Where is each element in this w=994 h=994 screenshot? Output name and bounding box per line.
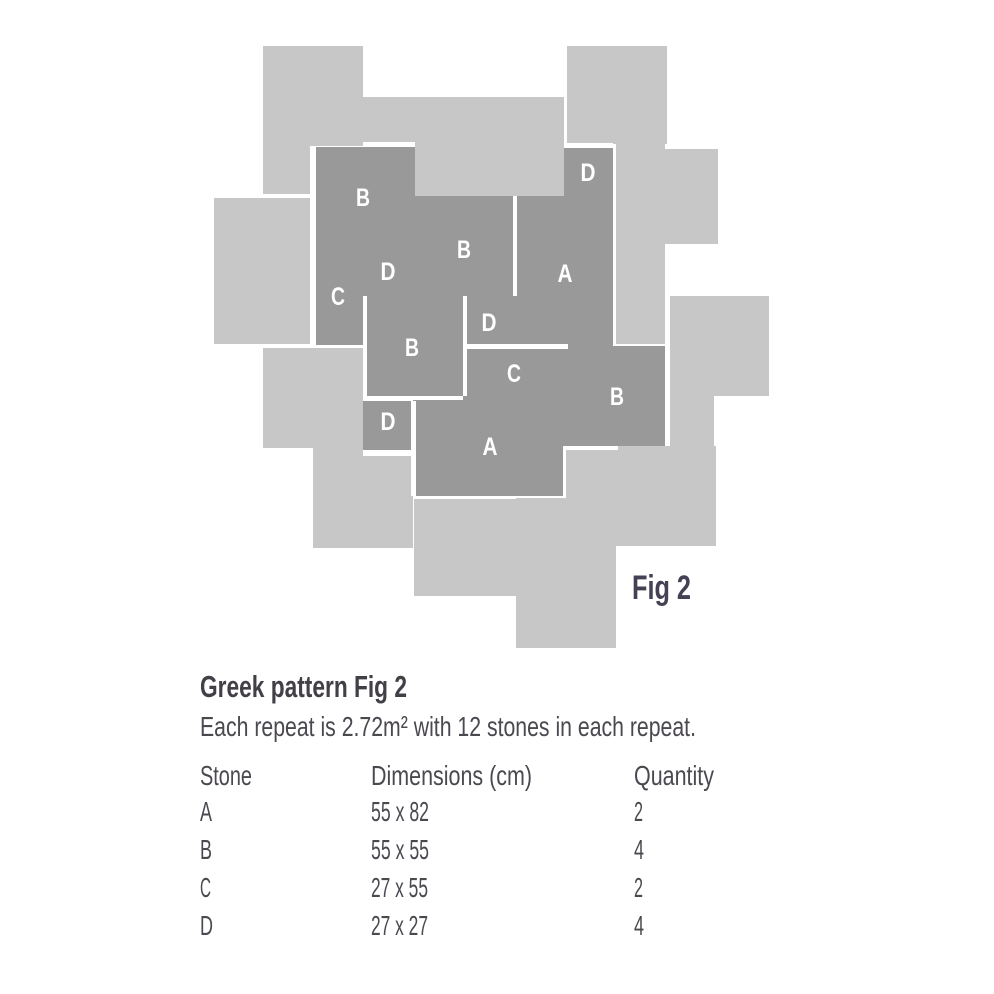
svg-text:B: B	[356, 184, 370, 212]
svg-text:D: D	[200, 910, 213, 941]
svg-text:55 x 82: 55 x 82	[371, 796, 429, 827]
svg-text:2: 2	[634, 872, 643, 903]
svg-text:27 x 55: 27 x 55	[371, 872, 428, 903]
svg-text:Fig 2: Fig 2	[632, 569, 691, 607]
svg-text:4: 4	[634, 910, 644, 941]
svg-text:A: A	[483, 433, 498, 461]
svg-text:27 x 27: 27 x 27	[371, 910, 428, 941]
svg-text:A: A	[558, 260, 573, 288]
svg-text:B: B	[610, 383, 624, 411]
svg-text:55 x 55: 55 x 55	[371, 834, 429, 865]
svg-text:D: D	[381, 408, 396, 436]
svg-text:D: D	[581, 159, 596, 187]
svg-text:B: B	[405, 334, 419, 362]
svg-text:Each repeat is 2.72m² with 12: Each repeat is 2.72m² with 12 stones in …	[200, 711, 696, 742]
svg-text:2: 2	[634, 796, 643, 827]
svg-text:A: A	[200, 796, 212, 827]
svg-text:Quantity: Quantity	[634, 760, 714, 791]
svg-text:C: C	[331, 283, 345, 311]
svg-text:D: D	[482, 309, 497, 337]
svg-text:C: C	[200, 872, 211, 903]
svg-text:B: B	[457, 236, 471, 264]
svg-text:Stone: Stone	[200, 760, 252, 791]
svg-text:Dimensions (cm): Dimensions (cm)	[371, 760, 532, 791]
svg-text:4: 4	[634, 834, 644, 865]
svg-text:Greek pattern Fig 2: Greek pattern Fig 2	[200, 669, 407, 704]
svg-text:C: C	[507, 360, 521, 388]
svg-text:B: B	[200, 834, 212, 865]
svg-text:D: D	[381, 258, 396, 286]
